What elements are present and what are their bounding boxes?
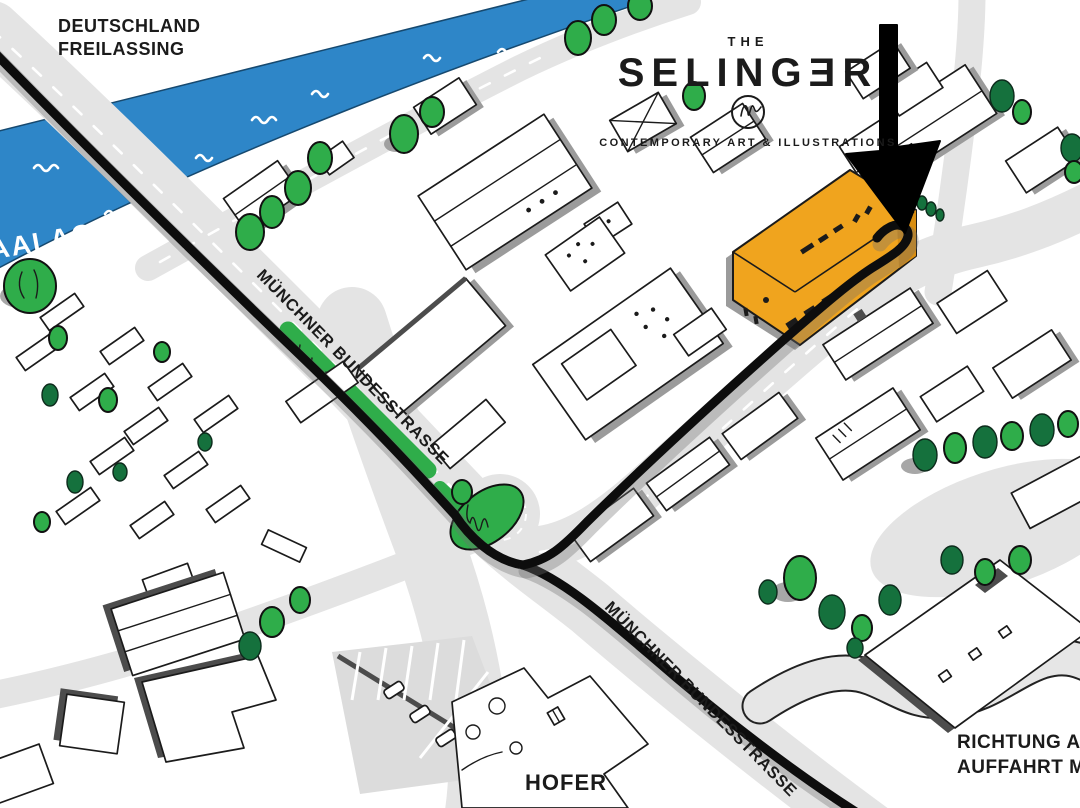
logo-tagline: CONTEMPORARY ART & ILLUSTRATIONS bbox=[599, 137, 896, 149]
label-direction-line2: AUFFAHRT MITT bbox=[957, 757, 1080, 778]
label-direction-line1: RICHTUNG A1 bbox=[957, 732, 1080, 753]
logo-name: SELINGƎR bbox=[618, 51, 878, 95]
logo-the: THE bbox=[728, 34, 769, 49]
label-region-line2: FREILASSING bbox=[58, 39, 185, 59]
map-canvas: THE SELINGƎR CONTEMPORARY ART & ILLUSTRA… bbox=[0, 0, 1080, 808]
label-store: HOFER bbox=[525, 770, 607, 795]
label-region-line1: DEUTSCHLAND bbox=[58, 16, 201, 36]
